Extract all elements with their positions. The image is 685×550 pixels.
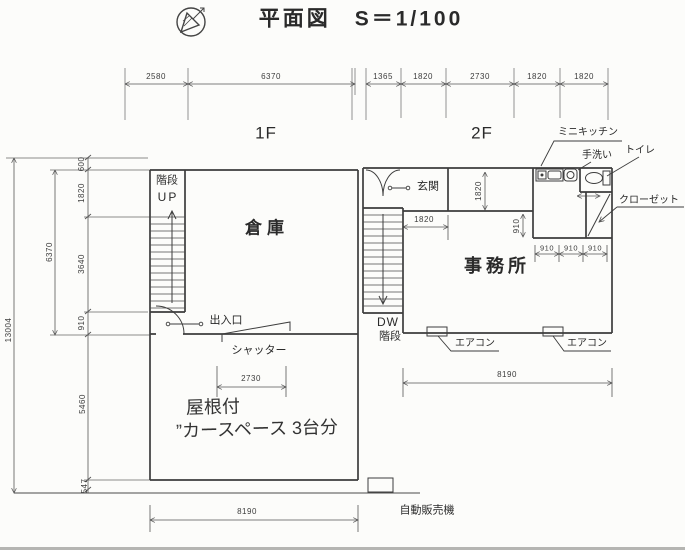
stairs-down-label: DW <box>377 316 399 328</box>
office-label: 事務所 <box>464 257 530 275</box>
floor-label-1f: 1F <box>255 125 277 142</box>
dim-bottom-2f: 8190 <box>497 371 517 379</box>
dim-left-span: 6370 <box>46 242 54 262</box>
dim-left-overall: 13004 <box>5 318 13 343</box>
entrance-door-arc <box>156 306 184 334</box>
dim-top-2f-1: 1820 <box>413 73 433 81</box>
toilet-label: トイレ <box>625 146 655 156</box>
aircon-unit-1 <box>427 327 447 336</box>
dim-left-5: 547 <box>81 479 89 494</box>
dim-left-3: 910 <box>78 316 86 331</box>
dim-genkan-width: 1820 <box>414 216 434 224</box>
dim-top-2f-0: 1365 <box>373 73 393 81</box>
stair-down-arrow <box>379 214 387 304</box>
dim-office-right: 910 <box>513 219 521 234</box>
genkan-label: 玄関 <box>417 182 439 193</box>
stair-up-arrow <box>168 211 176 303</box>
toilet-tank <box>603 171 610 185</box>
vending-machine-box <box>368 478 393 492</box>
dim-left-1: 1820 <box>78 183 86 203</box>
north-arrow-icon <box>177 8 205 36</box>
toilet-bowl <box>586 173 603 184</box>
carport-note-line1: 屋根付 <box>186 397 240 416</box>
closet-label: クローゼット <box>619 196 679 206</box>
carport-note-line2: ”カースペース 3台分 <box>176 418 338 440</box>
dim-sanitary-1: 910 <box>564 244 578 252</box>
page-title: 平面図 S＝1/100 <box>259 9 464 30</box>
floorplan-page: 平面図 S＝1/100 1F 2F 2580 6370 1365 1820 27… <box>0 0 685 550</box>
dim-left-0: 600 <box>78 157 86 172</box>
mini-kitchen-label: ミニキッチン <box>558 128 618 138</box>
dim-top-2f-4: 1820 <box>574 73 594 81</box>
dim-left-4: 5460 <box>79 394 87 414</box>
hand-wash-basin <box>564 169 577 181</box>
stairs-label-2f: 階段 <box>379 332 401 343</box>
stairs-up-label: UP <box>158 191 179 203</box>
dim-office-top-height: 1820 <box>475 181 483 201</box>
dim-sanitary-2: 910 <box>588 244 602 252</box>
aircon-label-1: エアコン <box>455 339 495 349</box>
shutter-label: シャッター <box>232 346 287 357</box>
dim-top-2f-2: 2730 <box>470 73 490 81</box>
vending-machine-label: 自動販売機 <box>400 506 455 517</box>
dim-top-1f-1: 6370 <box>261 73 281 81</box>
entrance-label: 出入口 <box>210 316 243 327</box>
dim-top-1f-0: 2580 <box>146 73 166 81</box>
dim-bottom-1f: 8190 <box>237 508 257 516</box>
warehouse-label: 倉庫 <box>245 220 289 237</box>
dim-left-2: 3640 <box>78 254 86 274</box>
aircon-label-2: エアコン <box>567 339 607 349</box>
dim-sanitary-0: 910 <box>540 244 554 252</box>
floor-label-2f: 2F <box>471 125 493 142</box>
hand-wash-label: 手洗い <box>582 151 612 161</box>
double-door-arcs <box>366 170 400 196</box>
stairs-label-1f: 階段 <box>156 176 178 187</box>
floorplan-drawing <box>0 0 685 550</box>
aircon-unit-2 <box>543 327 563 336</box>
dim-carport-width: 2730 <box>241 375 261 383</box>
dim-top-2f-3: 1820 <box>527 73 547 81</box>
